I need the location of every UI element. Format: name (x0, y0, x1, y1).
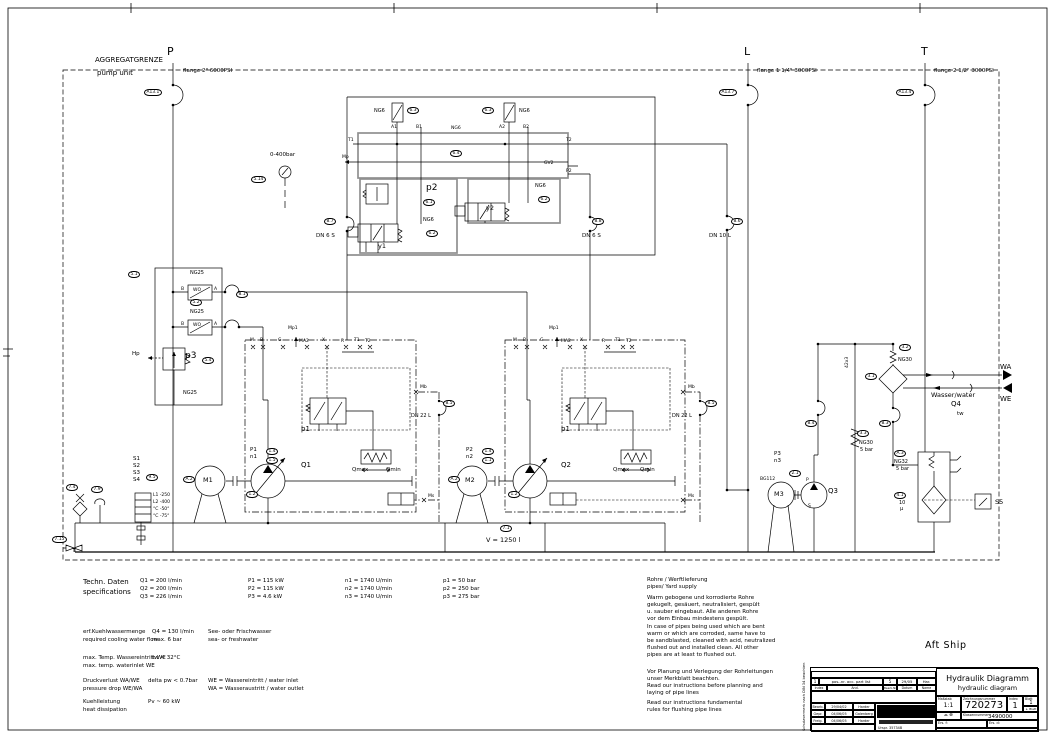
redacted-company-logo (877, 705, 935, 718)
cooling-water-line: See- oder Frischwasser (208, 629, 271, 637)
motor2-speed: n2 (466, 455, 473, 461)
note-line: pipes/ Yard supply (647, 584, 708, 591)
q2-port-r: R (602, 340, 605, 345)
tech-power-line: P2 = 115 kW (248, 586, 284, 594)
pump-q3: Q3 (828, 488, 838, 495)
port-t-letter: T (921, 46, 928, 57)
dp-label-line: Druckverlust WA/WE (83, 678, 142, 686)
motor1-label: M1 (203, 477, 213, 484)
location-label: Aft Ship (925, 640, 967, 651)
motor2-power: P2 (466, 448, 473, 454)
q2-port-m: M (513, 339, 517, 344)
aggregate-boundary (63, 70, 999, 560)
note-line: u. sauber eingebaut. Alle anderen Rohre (647, 609, 775, 616)
note-line: warm or which are corroded, same have to (647, 631, 775, 638)
heat-value: Pv ~ 60 kW (148, 699, 180, 707)
approval-freig-label: Freig. (811, 717, 825, 724)
redacted-company-line (879, 720, 933, 724)
cooler-tw: tw (957, 412, 964, 418)
tech-heading-line: Techn. Daten (83, 577, 131, 587)
title-block: 1 pos.-nr. acc. part list 5 29/05 Har. I… (810, 667, 1038, 731)
note-line: be sandblasted, cleaned with acid, neutr… (647, 638, 775, 645)
drawing-page: AGGREGATGRENZEpump unitPflange 2" 6000PS… (0, 0, 1053, 738)
dp-label-line: pressure drop WE/WA (83, 686, 142, 694)
wo1-a: A (214, 288, 217, 293)
tech-power-column: P1 = 115 kWP2 = 115 kWP3 = 4.6 kW (248, 578, 284, 602)
boundary-label: AGGREGATGRENZE (95, 57, 163, 64)
tech-pressure-column: p1 = 50 barp2 = 250 barp3 = 275 bar (443, 578, 479, 602)
port-p-flange: flange 2" 6000PSI (183, 69, 232, 75)
heat-label-line: Kuehlleistung (83, 699, 127, 707)
motor3-frame: BG112 (760, 478, 775, 483)
pilot-lines (302, 347, 975, 500)
pressure-drop-label: Druckverlust WA/WEpressure drop WE/WA (83, 678, 142, 694)
replaced-by-label: Ers. d: (989, 722, 1000, 725)
heat-label-line: heat dissipation (83, 707, 127, 715)
cooling-label-line: required cooling water flow (83, 637, 158, 645)
ref-a13-7: A13.7 (719, 89, 737, 96)
drawing-number-value: 720273 (962, 701, 1006, 711)
port-l-flange: flange 1 1/4" 3000PSI (757, 69, 817, 75)
ng6-y1: NG6 (423, 218, 434, 223)
ng6-y2: NG6 (535, 184, 546, 189)
port-t2: T2 (566, 139, 572, 144)
q1-port-t2: T2 (365, 340, 371, 345)
titleblock-empty-bottom (811, 724, 875, 732)
index-value: 1 (1008, 702, 1022, 710)
note-line: Vor Planung und Verlegung der Rohrleitun… (647, 669, 773, 676)
class-number-label: Klassennummer (963, 714, 989, 717)
cooling-label: erf.Kuehlwassermengerequired cooling wat… (83, 629, 158, 645)
sol-y1: y1 (378, 243, 386, 250)
approval-bearb-date: 29/04/02 (825, 703, 853, 710)
motor3-power: P3 (774, 452, 781, 458)
wo2-a: A (214, 323, 217, 328)
notes-para-4: Read our instructions fundamentalrules f… (647, 700, 742, 714)
port-hp: Hp (132, 352, 140, 358)
ref-a13-1: A13.1 (144, 89, 162, 96)
protection-note: Schutzvermerk nach DIN 34 beachten (802, 663, 806, 731)
drawing-title-de: Hydraulik Diagramm (937, 675, 1038, 683)
pipe-dn6s-a: DN 6 S (316, 234, 335, 240)
ref-a13-4: A13.4 (896, 89, 914, 96)
revision-mark: 5 (883, 678, 897, 685)
q1-mp1: Mp1 (288, 327, 298, 332)
q1-port-g: G (278, 339, 282, 344)
sheet-note: s. Blatt (1024, 708, 1038, 711)
water-label: Wasser/water (931, 392, 975, 399)
boundary-sublabel: pump unit (97, 70, 133, 77)
q1-port-t1: T1 (354, 339, 360, 344)
q1-port-ma2: MA2 (299, 340, 309, 345)
note-line: rules for flushing pipe lines (647, 707, 742, 714)
dp-value-line: delta pw < 0.7bar (148, 678, 198, 686)
q2-port-ma2: MA2 (561, 340, 571, 345)
q1-port-r: R (341, 340, 344, 345)
replaces-label: Ers. f: (938, 722, 948, 725)
water-legend-line: WA = Wasseraustritt / water outlet (208, 686, 304, 694)
index-cell: Index 1 (1007, 696, 1023, 712)
scale-label: Maßstab (938, 698, 952, 701)
title-cell: Hydraulik Diagramm hydraulic diagram (936, 668, 1039, 696)
level-t75: °C -75° (153, 515, 169, 520)
level-t50: °C -50° (153, 508, 169, 513)
tech-pressure-line: p3 = 275 bar (443, 594, 479, 602)
motor2-label: M2 (465, 477, 475, 484)
cooling-label-line: erf.Kuehlwassermenge (83, 629, 158, 637)
port-p2: P2 (566, 170, 572, 175)
pump-q1: Q1 (301, 462, 311, 469)
ng25-2: NG25 (190, 310, 204, 315)
q1-port-m: M (250, 339, 254, 344)
note-line: vor dem Einbau mindestens gespült. (647, 616, 775, 623)
motor3-speed: n3 (774, 459, 781, 465)
revision-date: 29/05 (897, 678, 917, 685)
tech-speed-column: n1 = 1740 U/minn2 = 1740 U/minn3 = 1740 … (345, 578, 392, 602)
notes-para-1: Rohre / Werftlieferungpipes/ Yard supply (647, 577, 708, 591)
motor1-power: P1 (250, 448, 257, 454)
port-mp: Mp (342, 156, 349, 161)
p2-subplates (358, 133, 568, 253)
heat-value-line: Pv ~ 60 kW (148, 699, 180, 707)
replaced-by-cell: Ers. d: (987, 720, 1039, 728)
ng30-check: NG30 (898, 358, 912, 363)
pipe-42x3: 42x3 (846, 357, 851, 368)
approval-freig-date: 04/06/05 (825, 717, 853, 724)
note-line: laying of pipe lines (647, 690, 773, 697)
switch-s2: S2 (133, 464, 140, 470)
q2-p1: p1 (561, 426, 570, 433)
cooling-value: Q4 = 130 l/minmax. 6 bar (152, 629, 194, 645)
tech-flow-column: Q1 = 200 l/minQ2 = 200 l/minQ3 = 226 l/m… (140, 578, 182, 602)
approval-gepr-date: 04/06/05 (825, 710, 853, 717)
switch-s4: S4 (133, 478, 140, 484)
origin-ref: Urspr. 35734B (878, 726, 902, 730)
q2-qmax: Qmax (613, 468, 629, 474)
port-t-flange: flange 2 1/2" 3000PSI (934, 69, 994, 75)
pressure-drop-value: delta pw < 0.7bar (148, 678, 198, 686)
approval-gepr-label: Gepr. (811, 710, 825, 717)
revision-index: 1 (811, 678, 819, 685)
tech-pressure-line: p2 = 250 bar (443, 586, 479, 594)
pump-enclosures (245, 340, 700, 523)
temp-value: tw = 32°C (152, 655, 180, 663)
q2-mp1: Mp1 (549, 327, 559, 332)
cooler-q4: Q4 (951, 401, 961, 408)
case-drain-arcs (439, 401, 707, 415)
tech-flow-line: Q3 = 226 l/min (140, 594, 182, 602)
ng32: NG32 (894, 460, 908, 465)
gauge-range: 0-400bar (270, 153, 295, 159)
approval-gepr-name: Galenberg (853, 710, 875, 717)
cooling-water-line: sea- or freshwater (208, 637, 271, 645)
titleblock-spacer (811, 691, 936, 703)
replaces-cell: Ers. f: (936, 720, 987, 728)
station-p2: p2 (426, 184, 437, 193)
water-we: WE (1000, 396, 1011, 403)
note-line: flushed out and installed clean. All oth… (647, 645, 775, 652)
tech-flow-line: Q2 = 200 l/min (140, 586, 182, 594)
wo2-b: B (181, 323, 184, 328)
tech-pressure-line: p1 = 50 bar (443, 578, 479, 586)
port-l-letter: L (744, 46, 750, 57)
drawing-title-en: hydraulic diagram (937, 685, 1038, 692)
port-b1: B1 (416, 126, 422, 131)
note-line: Rohre / Werftlieferung (647, 577, 708, 584)
drawing-number-cell: Zeichnungsnummer 720273 (961, 696, 1007, 712)
motor3-label: M3 (774, 491, 784, 498)
level-l2: L2 -400 (153, 501, 170, 506)
tank-volume: V = 1250 l (486, 537, 520, 544)
revision-empty-row (811, 671, 936, 678)
pipe-dn22l-b: DN 22 L (672, 414, 692, 419)
q2-port-t1: T1 (615, 339, 621, 344)
projection-symbol-icon: ⌓ ⊕ (937, 714, 960, 719)
filter-rating-unit: μ (900, 507, 903, 512)
note-line: Read our instructions fundamental (647, 700, 742, 707)
approval-bearb-name: Harder (853, 703, 875, 710)
manifold-ng6: NG6 (451, 127, 461, 132)
pipe-dn10l: DN 10 L (709, 234, 731, 240)
revision-text: pos.-nr. acc. part list (819, 678, 883, 685)
port-t1: T1 (348, 139, 354, 144)
class-number-cell: Klassennummer 3490000 (961, 712, 1039, 720)
pipe-dn6s-b: DN 6 S (582, 234, 601, 240)
q1-port-x: X (322, 339, 325, 344)
approval-freig-name: Harder (853, 717, 875, 724)
water-legend-line: WE = Wassereintritt / water inlet (208, 678, 304, 686)
note-line: In case of pipes being used which are be… (647, 624, 775, 631)
ng32-set: 5 bar (896, 467, 909, 472)
q2-port-t2: T2 (626, 340, 632, 345)
ng6-wo-left: NG6 (374, 109, 385, 114)
cooling-value-line: max. 6 bar (152, 637, 194, 645)
scale-value: 1:1 (937, 703, 960, 709)
q2-port-x: X (580, 339, 583, 344)
note-line: unser Merkblatt beachten. (647, 676, 773, 683)
switch-s3: S3 (133, 471, 140, 477)
cooling-value-line: Q4 = 130 l/min (152, 629, 194, 637)
tech-flow-line: Q1 = 200 l/min (140, 578, 182, 586)
ng25-1: NG25 (190, 271, 204, 276)
revision-name: Har. (917, 678, 936, 685)
q1-qmax: Qmax (352, 468, 368, 474)
tech-speed-line: n3 = 1740 U/min (345, 594, 392, 602)
water-wa: WA (1000, 364, 1011, 371)
wo2-wo: WO (193, 324, 201, 329)
port-b2: B2 (523, 126, 529, 131)
notes-para-2: Warm gebogene und korrodierte Rohregekug… (647, 595, 775, 659)
tech-power-line: P1 = 115 kW (248, 578, 284, 586)
note-line: Warm gebogene und korrodierte Rohre (647, 595, 775, 602)
ng30-relief-set: 5 bar (860, 448, 873, 453)
motor1-speed: n1 (250, 455, 257, 461)
notes-para-3: Vor Planung und Verlegung der Rohrleitun… (647, 669, 773, 698)
tech-speed-line: n1 = 1740 U/min (345, 578, 392, 586)
temp-label-line: max. temp. waterinlet WE (83, 663, 166, 671)
q1-ms: Ms (428, 495, 434, 500)
projection-symbol-cell: ⌓ ⊕ (936, 712, 961, 720)
tech-heading: Techn. Datenspecifications (83, 577, 131, 597)
port-gv2: GV2 (544, 162, 553, 167)
tech-heading-line: specifications (83, 587, 131, 597)
q3-port-s: S (808, 505, 811, 510)
port-p-letter: P (167, 46, 174, 57)
water-legend: WE = Wassereintritt / water inletWA = Wa… (208, 678, 304, 694)
pump-q2: Q2 (561, 462, 571, 469)
cooling-water-type: See- oder Frischwassersea- or freshwater (208, 629, 271, 645)
port-a2: A2 (499, 126, 505, 131)
q3-port-p: P (806, 479, 809, 484)
q1-port-b: B (260, 339, 263, 344)
tech-power-line: P3 = 4.6 kW (248, 594, 284, 602)
scale-cell: Maßstab 1:1 (936, 696, 961, 712)
note-line: pipes are at least to flushed out. (647, 652, 775, 659)
q1-mb: Mb (420, 386, 427, 391)
q2-port-b: B (523, 339, 526, 344)
ng6-wo-right: NG6 (519, 109, 530, 114)
pipe-dn22l-a: DN 22 L (411, 414, 431, 419)
q1-p1: p1 (301, 426, 310, 433)
ref-7-15: 7.15 (52, 536, 67, 543)
note-line: Read our instructions before planning an… (647, 683, 773, 690)
heat-label: Kuehlleistungheat dissipation (83, 699, 127, 715)
q1-qmin: Qmin (386, 468, 401, 474)
wo1-wo: WO (193, 289, 201, 294)
switch-s5: S5 (995, 499, 1003, 506)
switch-s1: S1 (133, 457, 140, 463)
ref-5-14: 5.14 (251, 176, 266, 183)
q2-mb: Mb (688, 386, 695, 391)
company-cell: Urspr. 35734B (875, 703, 936, 732)
valve-p3: p3 (185, 352, 196, 361)
note-line: gekugelt, gesäuert, neutralisiert, gespü… (647, 602, 775, 609)
temp-value-line: tw = 32°C (152, 655, 180, 663)
q2-ms: Ms (688, 495, 694, 500)
sheet-cell: Blatt 1 (1023, 696, 1039, 706)
sol-y2: y2 (486, 205, 494, 212)
port-a1: A1 (391, 126, 397, 131)
q2-port-g: G (540, 339, 544, 344)
tech-speed-line: n2 = 1740 U/min (345, 586, 392, 594)
titleblock-bottom-strip (936, 728, 1039, 732)
approval-bearb-label: Bearb. (811, 703, 825, 710)
wo1-b: B (181, 288, 184, 293)
level-l1: L1 -250 (153, 494, 170, 499)
q2-qmin: Qmin (640, 468, 655, 474)
ng25-3: NG25 (183, 391, 197, 396)
ng30-relief: NG30 (859, 441, 873, 446)
